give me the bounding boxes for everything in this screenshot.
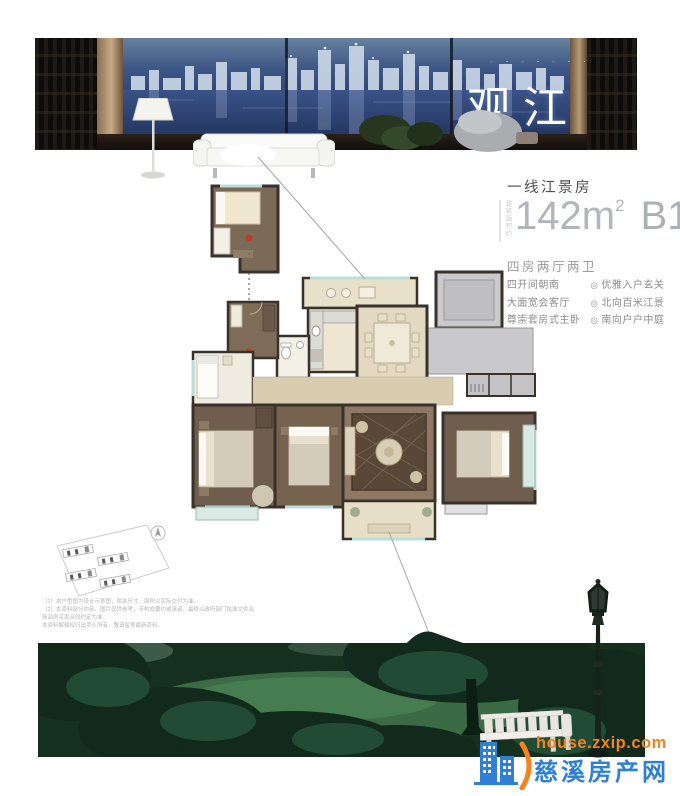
disclaimer-line: （1）本户型图为设计示意图，相关尺寸、面积以实际交付为准。 bbox=[42, 598, 257, 606]
building-logo-icon bbox=[472, 740, 534, 790]
study-room bbox=[193, 352, 253, 405]
entry-foyer bbox=[228, 302, 278, 358]
bookshelf-right bbox=[587, 38, 637, 150]
corridor bbox=[253, 377, 453, 405]
bullet-icon: ◎ bbox=[590, 315, 598, 325]
floor-lamp-icon bbox=[125, 98, 181, 182]
plant-icon bbox=[355, 104, 447, 150]
bullet-icon: ◎ bbox=[590, 280, 598, 290]
disclaimer-notes: （1）本户型图为设计示意图，相关尺寸、面积以实际交付为准。 （2）本资料部分内容… bbox=[42, 598, 257, 630]
kitchen bbox=[308, 308, 360, 372]
site-plan-map bbox=[45, 516, 180, 604]
location-marker-red bbox=[246, 235, 253, 242]
bathroom bbox=[277, 336, 309, 378]
master-bedroom bbox=[193, 405, 275, 507]
title-decor-dots: · · · · · · · bbox=[490, 56, 591, 66]
watermark: house.zxip.com 慈溪房产网 bbox=[466, 732, 680, 792]
disclaimer-line: （2）本资料部分内容、图片仅供参考，不构成要约或承诺，最终以政府部门批准文件及商… bbox=[42, 606, 257, 622]
garden-edge-bump bbox=[405, 625, 475, 645]
area-superscript: 2 bbox=[615, 196, 624, 215]
north-balcony bbox=[303, 278, 417, 308]
bay-window bbox=[196, 507, 258, 520]
floor-plan bbox=[175, 178, 550, 548]
right-bedroom bbox=[443, 413, 535, 503]
feature-item: ◎北向百米江景 bbox=[590, 295, 664, 313]
detached-room bbox=[212, 186, 278, 272]
living-room bbox=[343, 405, 435, 501]
south-balcony bbox=[343, 501, 435, 539]
bookshelf-left bbox=[35, 38, 97, 150]
disclaimer-line: 本资料解释权归出卖人所有，敬请留意最新资料。 bbox=[42, 622, 257, 630]
watermark-url: house.zxip.com bbox=[536, 734, 667, 753]
compass-icon bbox=[151, 526, 165, 540]
middle-bedroom bbox=[275, 405, 343, 507]
street-lamp-icon bbox=[580, 578, 616, 758]
bay-window bbox=[523, 425, 535, 487]
watermark-site-name: 慈溪房产网 bbox=[534, 752, 669, 787]
dining-room bbox=[357, 306, 427, 380]
flyer-page: · · · · · · · 观江 一线江景房 建筑面积约 142m2B1 四房两… bbox=[0, 0, 680, 796]
armchair-icon bbox=[450, 104, 542, 160]
feature-item: ◎优雅入户玄关 bbox=[590, 277, 664, 295]
feature-item: ◎南向户户中庭 bbox=[590, 312, 664, 330]
banner-edge-cutout bbox=[220, 144, 276, 166]
window-mullion bbox=[285, 38, 288, 138]
bullet-icon: ◎ bbox=[590, 298, 598, 308]
plan-code: B1 bbox=[641, 194, 680, 238]
